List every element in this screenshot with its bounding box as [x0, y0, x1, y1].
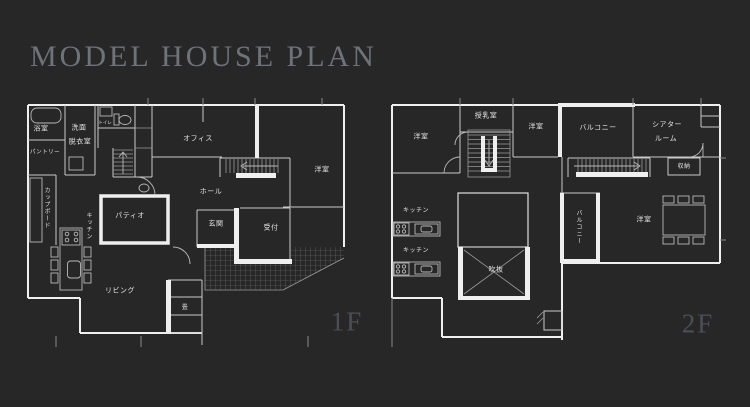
- room-label-storage: 収納: [677, 164, 690, 170]
- room-label-kitchen-2f-2: キッチン: [403, 248, 429, 254]
- room-label-balcony-side: バルコニー: [575, 210, 581, 245]
- room-label-tatami: 畳: [182, 305, 189, 311]
- model-house-plan-page: MODEL HOUSE PLAN 浴室 洗面 脱衣室 トイレ パントリー カップ…: [0, 0, 750, 407]
- floor2-label: 2F: [682, 309, 715, 340]
- room-label-living: リビング: [105, 288, 135, 295]
- room-label-balcony-top: バルコニー: [579, 125, 616, 132]
- room-label-office: オフィス: [183, 136, 213, 143]
- room-label-bedroom-2f-right: 洋室: [637, 217, 652, 224]
- room-label-washroom-2: 脱衣室: [69, 139, 92, 146]
- floor1-label: 1F: [331, 307, 364, 338]
- room-label-washroom-1: 洗面: [72, 125, 87, 132]
- room-label-void: 吹抜: [489, 267, 504, 274]
- page-title: MODEL HOUSE PLAN: [30, 40, 377, 74]
- room-label-kitchen-1f: キッチン: [85, 212, 91, 240]
- room-label-bath: 浴室: [34, 126, 49, 133]
- room-label-reception: 受付: [264, 225, 279, 232]
- room-label-theater-1: シアター: [652, 122, 682, 129]
- room-label-kitchen-2f-1: キッチン: [403, 208, 429, 214]
- room-label-bedroom-2f-tc: 洋室: [529, 124, 544, 131]
- room-label-pantry: パントリー: [30, 150, 60, 156]
- room-label-hall: ホール: [200, 189, 223, 196]
- room-label-entrance: 玄関: [209, 221, 224, 228]
- room-label-bedroom-1f: 洋室: [315, 167, 330, 174]
- room-label-toilet: トイレ: [98, 121, 112, 126]
- room-label-nursing: 授乳室: [475, 113, 498, 120]
- room-label-patio: パティオ: [115, 213, 145, 220]
- room-label-theater-2: ルーム: [655, 136, 677, 143]
- room-label-cupboard: カップボード: [43, 187, 49, 229]
- room-label-bedroom-2f-tl: 洋室: [414, 134, 429, 141]
